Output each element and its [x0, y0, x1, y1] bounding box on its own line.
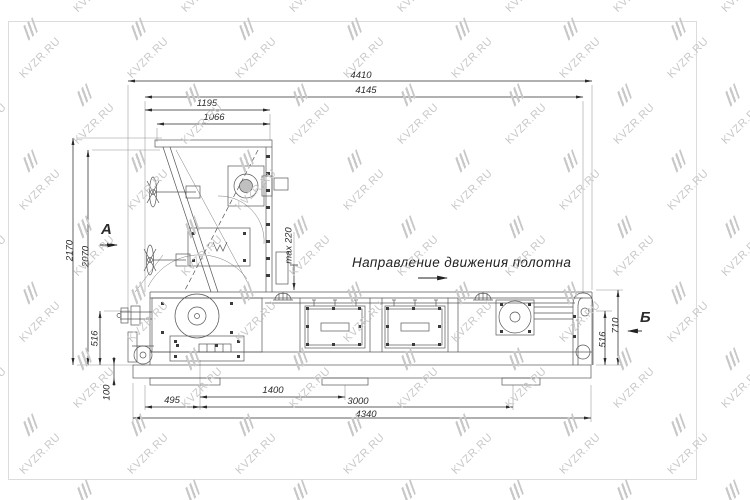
dim-1066: 1066: [189, 112, 239, 123]
view-label-a: А: [101, 222, 112, 237]
dim-max-220: max 220: [284, 221, 295, 271]
dim-3000: 3000: [333, 396, 383, 407]
direction-caption: Направление движения полотна: [352, 255, 571, 270]
dim-495: 495: [147, 395, 197, 406]
dim-4145: 4145: [341, 85, 391, 96]
dim-516-right: 516: [598, 320, 609, 360]
dim-1400: 1400: [248, 385, 298, 396]
view-label-b: Б: [640, 310, 651, 325]
drawing-sheet: 4410 4145 1195 1066 2170 2070 max 220 51…: [0, 0, 750, 500]
dim-4410: 4410: [336, 70, 386, 81]
dim-2070: 2070: [81, 237, 92, 277]
dim-2170: 2170: [65, 231, 76, 271]
dim-100: 100: [102, 373, 113, 413]
extension-lines: [77, 85, 623, 422]
dim-1195: 1195: [182, 98, 232, 109]
dimension-lines: [73, 81, 618, 418]
dim-4340: 4340: [341, 409, 391, 420]
dim-710: 710: [611, 306, 622, 346]
dim-516-left: 516: [90, 319, 101, 359]
